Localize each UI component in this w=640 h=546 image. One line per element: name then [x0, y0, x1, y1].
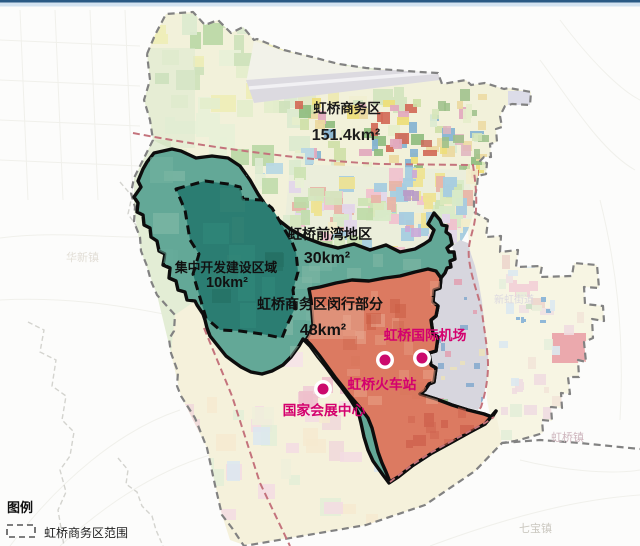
svg-text:国家会展中心: 国家会展中心: [283, 402, 366, 418]
svg-text:华新镇: 华新镇: [66, 250, 99, 264]
svg-text:30km²: 30km²: [304, 250, 350, 267]
svg-text:七宝镇: 七宝镇: [519, 521, 552, 535]
svg-text:48km²: 48km²: [300, 322, 346, 339]
svg-text:151.4km²: 151.4km²: [312, 127, 381, 144]
svg-text:图例: 图例: [7, 500, 33, 515]
svg-text:新虹街道: 新虹街道: [494, 293, 534, 306]
svg-text:虹桥火车站: 虹桥火车站: [348, 376, 417, 392]
svg-text:虹桥商务区范围: 虹桥商务区范围: [44, 525, 128, 540]
svg-text:虹桥国际机场: 虹桥国际机场: [384, 327, 467, 343]
svg-text:虹桥镇: 虹桥镇: [551, 430, 584, 444]
svg-text:虹桥商务区闵行部分: 虹桥商务区闵行部分: [257, 296, 383, 312]
svg-text:虹桥前湾地区: 虹桥前湾地区: [288, 226, 372, 242]
svg-text:10km²: 10km²: [206, 275, 248, 291]
svg-text:集中开发建设区域: 集中开发建设区域: [174, 260, 278, 275]
svg-text:虹桥商务区: 虹桥商务区: [313, 100, 381, 116]
